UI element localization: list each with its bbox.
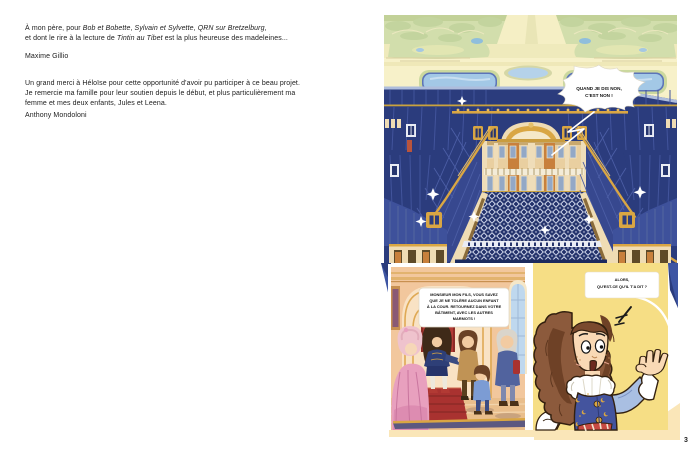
svg-text:C'EST NON !: C'EST NON ! [585,93,613,98]
svg-text:MONSIEUR MON FILS, VOUS SAVEZ: MONSIEUR MON FILS, VOUS SAVEZ [430,292,498,297]
svg-text:ALORS,: ALORS, [615,277,630,282]
svg-text:QUE JE NE TOLÈRE AUCUN ENFANT: QUE JE NE TOLÈRE AUCUN ENFANT [429,298,499,303]
svg-text:BÂTIMENT, AVEC LES AUTRES: BÂTIMENT, AVEC LES AUTRES [435,310,493,315]
svg-text:QUAND JE DIS NON,: QUAND JE DIS NON, [576,86,621,91]
svg-text:QU'EST-CE QU'IL T'A DIT ?: QU'EST-CE QU'IL T'A DIT ? [597,284,648,289]
svg-text:À LA COUR. RETOURNEZ DANS VOTR: À LA COUR. RETOURNEZ DANS VOTRE [427,304,502,309]
svg-text:MARMOTS !: MARMOTS ! [453,316,475,321]
